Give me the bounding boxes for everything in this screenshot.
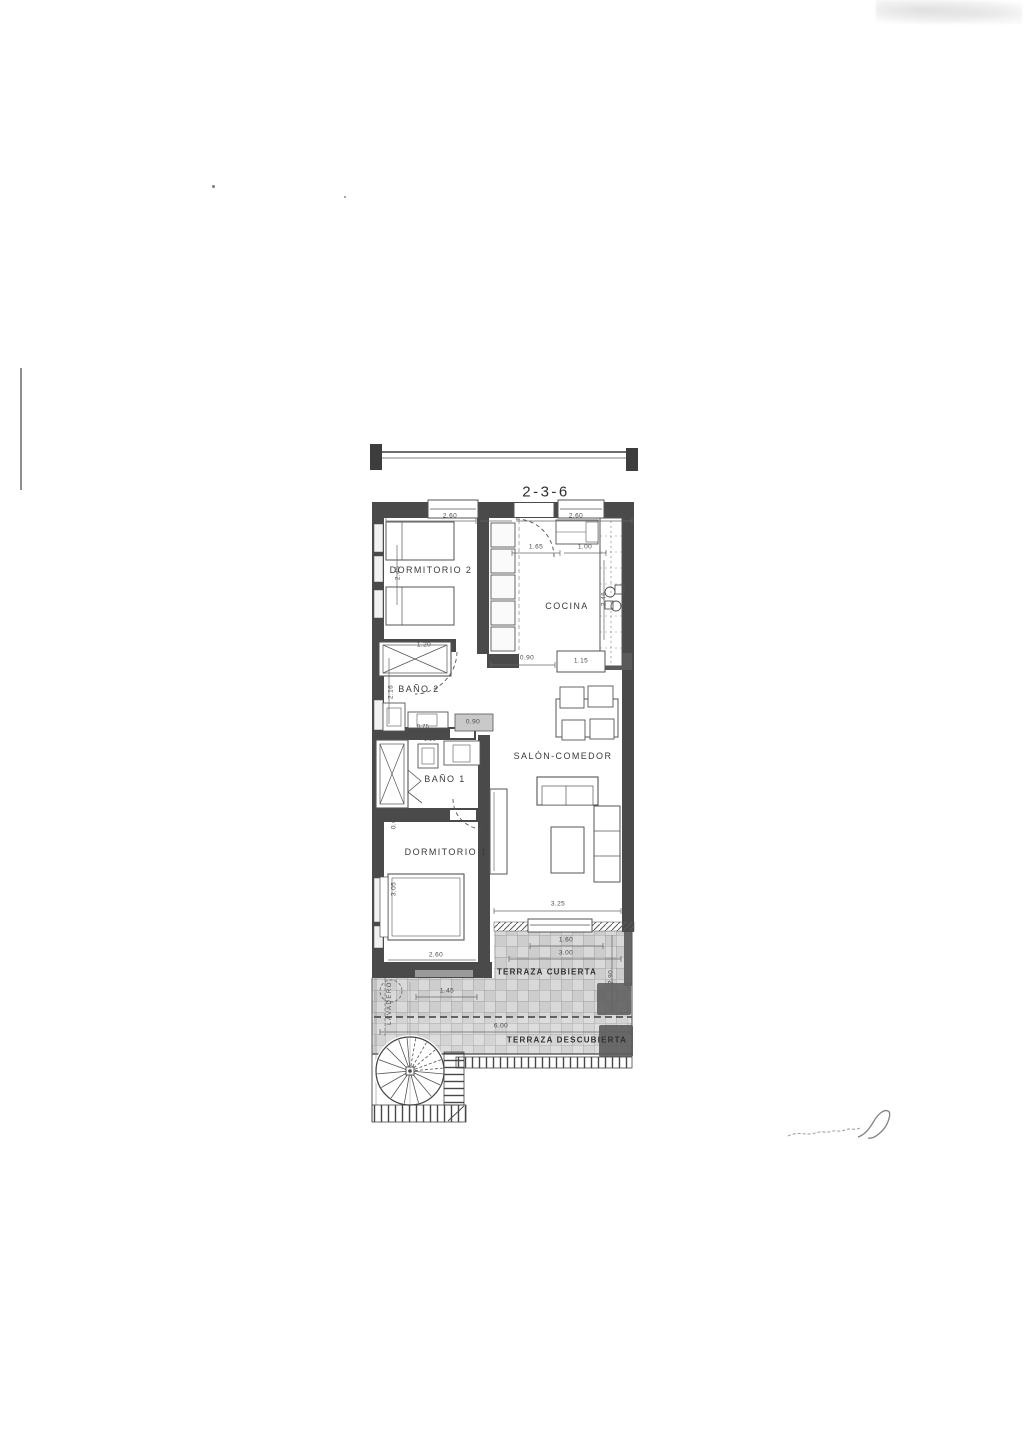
dim-terraza-left: 1.45 — [440, 988, 454, 995]
signature-scribble — [788, 1111, 890, 1139]
dim-cocina-depth: 2.46 — [601, 592, 608, 606]
dim-terraza-depth: 2.90 — [608, 970, 615, 984]
parapet-line — [370, 444, 638, 471]
room-label-cocina: COCINA — [545, 601, 588, 611]
dim-cocina-inner-a: 1.65 — [529, 544, 543, 551]
scan-edge-line — [20, 368, 22, 490]
scanned-floorplan-page: 2-3-6 DORMITORIO 2 COCINA BAÑO 2 SALÓN-C… — [0, 0, 1024, 1448]
room-label-terraza-cubierta: TERRAZA CUBIERTA — [497, 968, 597, 977]
dim-entrance-width: 0.80 — [490, 513, 504, 520]
hall-closets — [491, 520, 519, 654]
room-label-bano1: BAÑO 1 — [424, 774, 465, 784]
floor-plan-drawing — [0, 0, 1024, 1448]
dim-bano2-vanity: 0.75 — [417, 724, 429, 730]
bathroom1-fixtures — [408, 741, 480, 803]
shower — [376, 740, 408, 808]
room-label-lavadero: LAVADERO — [387, 981, 393, 1025]
planter — [597, 983, 631, 1015]
dim-hall-cabinet: 0.90 — [466, 719, 480, 726]
room-label-bano2: BAÑO 2 — [398, 684, 439, 694]
dim-bano1-top: 1.20 — [424, 737, 436, 743]
bathtub — [379, 642, 451, 676]
unit-number-label: 2-3-6 — [522, 484, 570, 501]
dim-hall-opening: 0.90 — [520, 655, 534, 662]
dim-terraza-door: 1.60 — [559, 937, 573, 944]
dim-terraza-inner: 3.00 — [559, 950, 573, 957]
kitchen-counter — [556, 518, 622, 666]
scan-speck — [344, 196, 346, 198]
dining-set — [556, 686, 618, 740]
dim-dorm1-depth: 3.05 — [391, 882, 398, 896]
dim-dorm2-width: 2.60 — [443, 513, 457, 520]
dim-cocina-inner-b: 1.00 — [578, 544, 592, 551]
dim-cocina-counter: 1.15 — [574, 658, 588, 665]
sofa — [537, 777, 598, 805]
tv-cabinet — [490, 789, 507, 874]
dim-bano1-side: 0.60 — [391, 815, 398, 829]
room-label-dormitorio2: DORMITORIO 2 — [390, 565, 473, 575]
dim-bathtub-width: 1.20 — [417, 642, 431, 649]
dim-dorm1-width: 2.60 — [429, 952, 443, 959]
coffee-table — [551, 827, 584, 873]
scan-speck — [212, 185, 215, 188]
side-unit — [594, 806, 620, 882]
room-label-salon: SALÓN-COMEDOR — [514, 751, 613, 761]
scan-smudge — [876, 0, 1022, 24]
room-label-dormitorio1: DORMITORIO 1 — [405, 847, 488, 857]
dim-terraza-width: 6.00 — [494, 1023, 508, 1030]
room-label-terraza-descubierta: TERRAZA DESCUBIERTA — [507, 1036, 627, 1045]
bathroom2-fixtures — [383, 703, 493, 731]
dim-salon-opening: 3.25 — [551, 901, 565, 908]
dim-dorm2-depth: 2.45 — [395, 566, 402, 580]
dim-bano2-depth: 2.16 — [388, 685, 395, 699]
dim-cocina-top-width: 2.60 — [569, 513, 583, 520]
